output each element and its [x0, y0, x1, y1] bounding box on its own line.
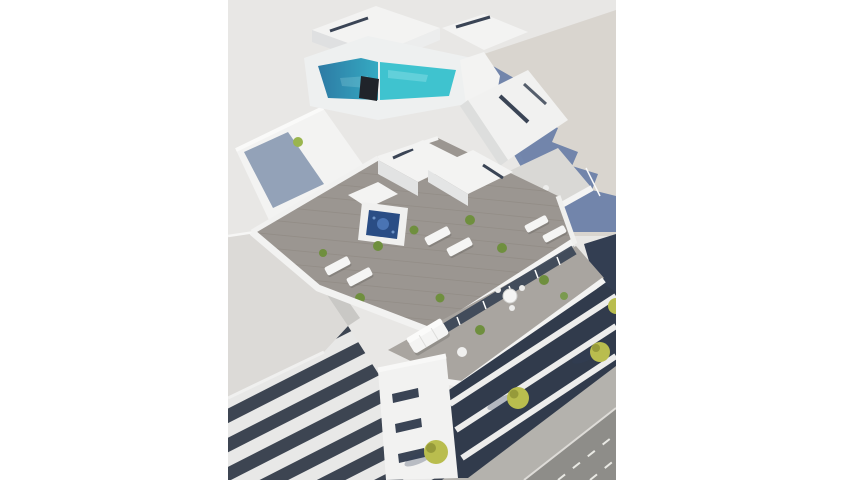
street-tree — [424, 440, 448, 464]
render-canvas — [228, 0, 616, 480]
chair — [495, 287, 501, 293]
street-tree — [590, 342, 610, 362]
potted-plant — [475, 325, 485, 335]
dining-table — [503, 289, 517, 303]
pool-island-cube — [359, 76, 379, 101]
hot-tub-jet — [392, 231, 395, 234]
potted-plant — [539, 275, 549, 285]
potted-plant — [465, 215, 475, 225]
page — [0, 0, 850, 480]
potted-plant — [436, 294, 445, 303]
hot-tub-center — [377, 218, 389, 230]
tree-highlight — [426, 443, 436, 453]
potted-plant — [373, 241, 383, 251]
potted-plant — [410, 226, 419, 235]
hot-tub — [358, 202, 408, 246]
potted-plant — [560, 292, 568, 300]
potted-plant — [497, 243, 507, 253]
coffee-table — [457, 347, 467, 357]
street-tree — [507, 387, 529, 409]
potted-plant — [319, 249, 327, 257]
hot-tub-jet — [373, 217, 376, 220]
listing-photo — [228, 0, 616, 480]
tree-highlight — [592, 344, 600, 352]
tree-highlight — [510, 390, 519, 399]
chair — [519, 285, 525, 291]
chair — [509, 305, 515, 311]
potted-plant — [293, 137, 303, 147]
